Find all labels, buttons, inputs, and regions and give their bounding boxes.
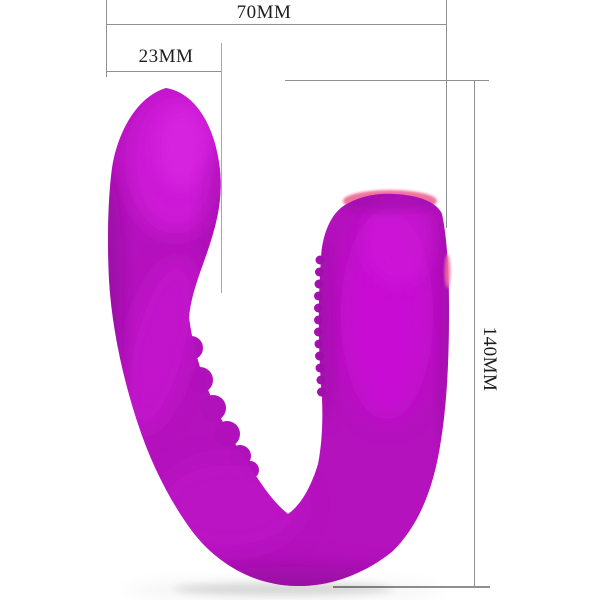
edge-accent-sliver	[445, 254, 451, 288]
diagram-canvas: 70MM 23MM 140MM	[0, 0, 600, 600]
dim-width-label: 70MM	[214, 3, 314, 23]
dim-head-width-label: 23MM	[116, 47, 216, 67]
product-illustration	[0, 0, 600, 600]
dim-height-label: 140MM	[479, 304, 499, 414]
